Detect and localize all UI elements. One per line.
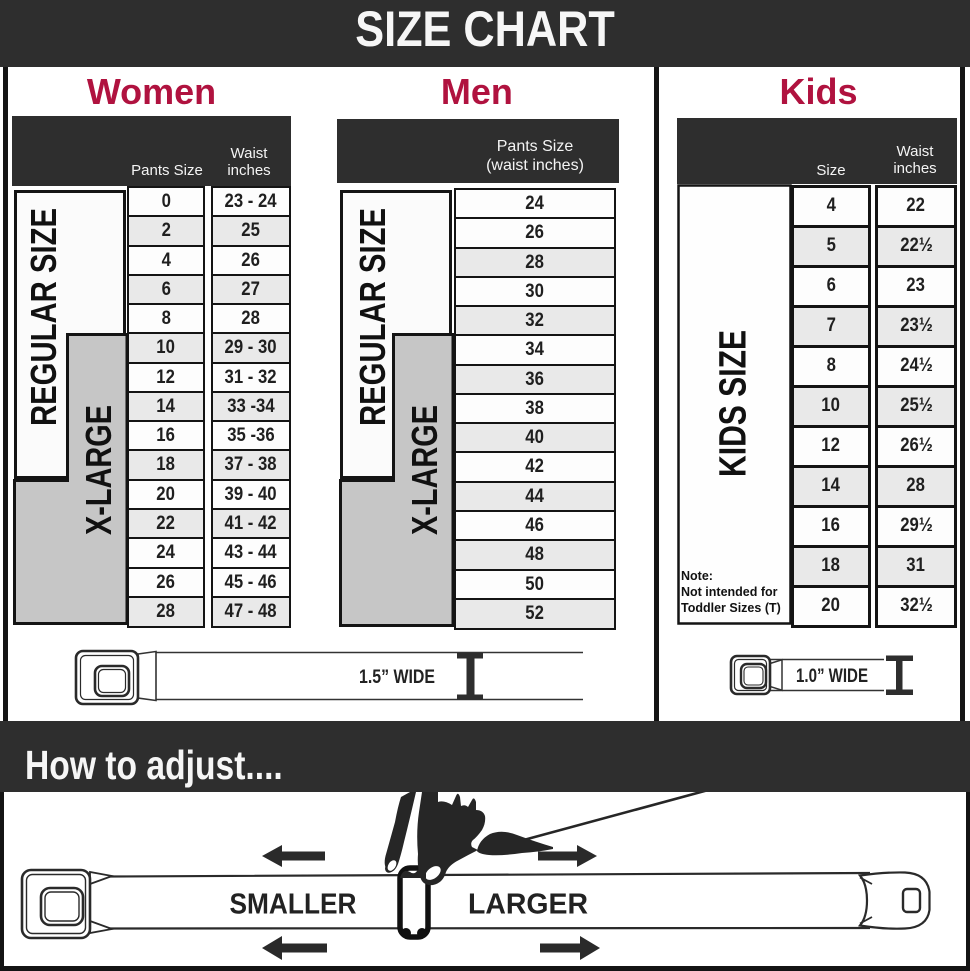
svg-text:KIDS SIZE: KIDS SIZE [713,330,755,477]
svg-text:REGULAR SIZE: REGULAR SIZE [23,208,64,426]
svg-text:SMALLER: SMALLER [230,889,357,921]
svg-text:LARGER: LARGER [468,889,588,921]
svg-text:1.5” WIDE: 1.5” WIDE [359,667,435,688]
svg-text:X-LARGE: X-LARGE [78,405,119,535]
svg-text:1.0” WIDE: 1.0” WIDE [796,666,868,687]
svg-text:X-LARGE: X-LARGE [404,405,445,535]
svg-text:REGULAR SIZE: REGULAR SIZE [352,208,393,426]
